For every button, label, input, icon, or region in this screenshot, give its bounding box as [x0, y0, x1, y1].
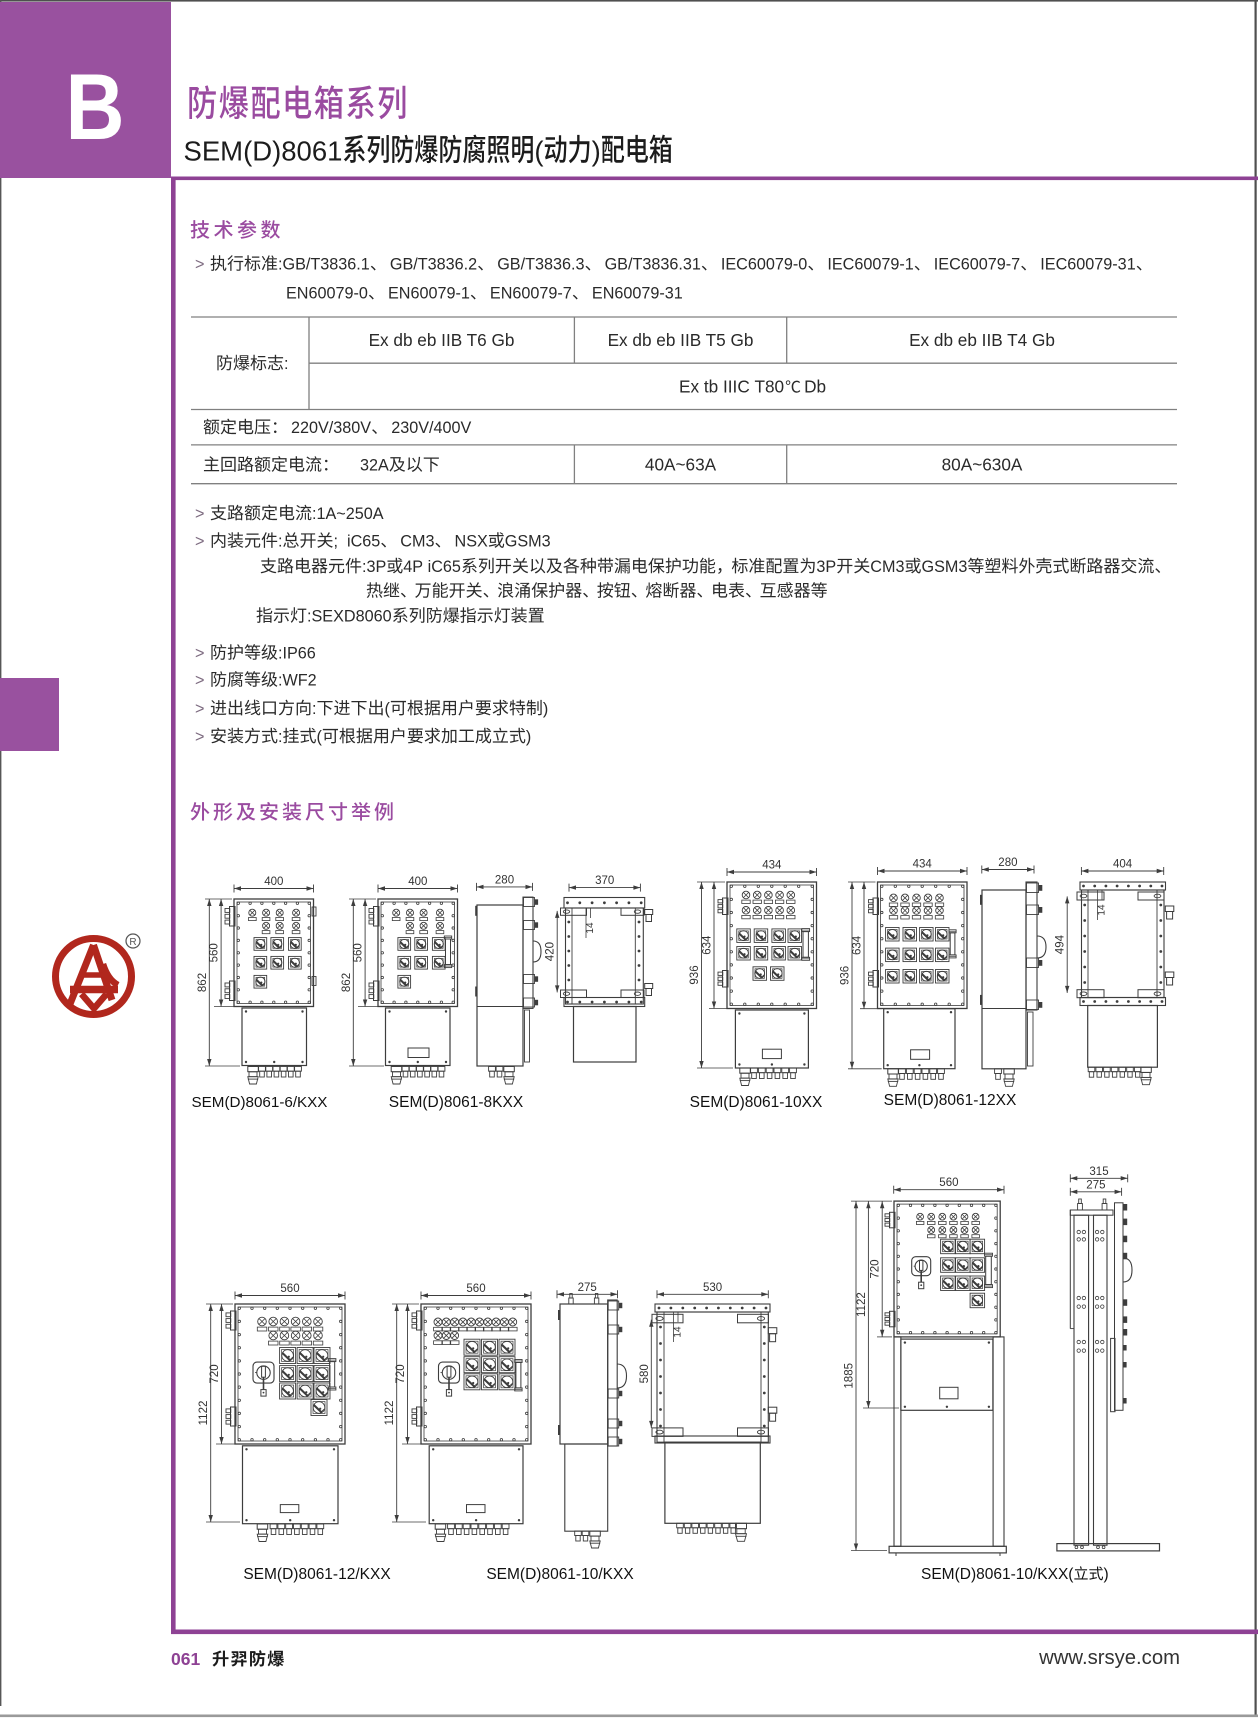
- svg-text:IIIC: IIIC: [723, 377, 750, 397]
- svg-text:80A~630A: 80A~630A: [942, 455, 1023, 475]
- svg-text:CM3: CM3: [870, 558, 904, 576]
- svg-text:560: 560: [209, 943, 221, 962]
- svg-text:720: 720: [395, 1364, 407, 1383]
- svg-text:IEC60079-31: IEC60079-31: [1040, 256, 1135, 274]
- svg-text:275: 275: [1086, 1179, 1105, 1191]
- svg-text:Ex db eb IIB T4 Gb: Ex db eb IIB T4 Gb: [909, 330, 1055, 350]
- svg-text:560: 560: [466, 1283, 485, 1295]
- svg-text::1A~250A: :1A~250A: [312, 505, 384, 523]
- svg-text:): ): [592, 136, 601, 167]
- svg-text:434: 434: [762, 860, 782, 872]
- svg-text:EN60079-0: EN60079-0: [286, 285, 368, 303]
- svg-text::: :: [278, 533, 283, 551]
- svg-text:230V/400V: 230V/400V: [391, 419, 471, 437]
- svg-text::: :: [284, 355, 289, 373]
- svg-text:634: 634: [702, 935, 714, 955]
- svg-text:634: 634: [852, 935, 864, 955]
- svg-text:;: ;: [334, 533, 339, 551]
- svg-text:CM3: CM3: [400, 533, 434, 551]
- svg-text:1122: 1122: [198, 1401, 210, 1426]
- svg-text:IEC60079-1: IEC60079-1: [827, 256, 913, 274]
- svg-text::: :: [278, 728, 283, 746]
- svg-text:SEM(D)8061-10/KXX: SEM(D)8061-10/KXX: [486, 1566, 634, 1583]
- svg-text::GB/T3836.1: :GB/T3836.1: [278, 256, 370, 274]
- svg-text:EN60079-7: EN60079-7: [490, 285, 572, 303]
- svg-text:GSM3: GSM3: [505, 533, 551, 551]
- svg-text::WF2: :WF2: [278, 672, 317, 690]
- svg-text:580: 580: [639, 1364, 651, 1383]
- svg-text:315: 315: [1089, 1166, 1108, 1178]
- svg-text:Ex: Ex: [679, 377, 699, 397]
- svg-text:560: 560: [939, 1177, 958, 1189]
- svg-text:>: >: [195, 645, 204, 663]
- svg-text:400: 400: [408, 876, 427, 888]
- svg-text:420: 420: [545, 942, 557, 961]
- svg-text:SEM(D)8061-10XX: SEM(D)8061-10XX: [690, 1094, 823, 1111]
- svg-text:www.srsye.com: www.srsye.com: [1038, 1647, 1180, 1669]
- svg-text:1122: 1122: [856, 1292, 868, 1317]
- svg-text:(: (: [534, 136, 543, 167]
- svg-text:434: 434: [913, 859, 933, 871]
- svg-text:): ): [526, 728, 531, 746]
- svg-text:404: 404: [1113, 859, 1133, 871]
- svg-text:220V/380V: 220V/380V: [291, 419, 371, 437]
- svg-text:370: 370: [595, 875, 614, 887]
- svg-text:): ): [543, 700, 548, 718]
- svg-text:1122: 1122: [384, 1401, 396, 1426]
- svg-text:061: 061: [171, 1649, 200, 1669]
- svg-text:(: (: [385, 700, 391, 718]
- svg-text:SEM(D)8061-12XX: SEM(D)8061-12XX: [884, 1092, 1017, 1109]
- svg-text:Db: Db: [804, 377, 826, 397]
- svg-text:494: 494: [1055, 934, 1067, 954]
- svg-text:862: 862: [197, 973, 209, 992]
- svg-text:SEM(D)8061-8KXX: SEM(D)8061-8KXX: [389, 1094, 524, 1111]
- svg-text::IP66: :IP66: [278, 645, 316, 663]
- svg-text:>: >: [195, 505, 204, 523]
- svg-text:14: 14: [585, 922, 596, 934]
- svg-text:720: 720: [209, 1364, 221, 1383]
- svg-text:>: >: [195, 700, 204, 718]
- svg-text:>: >: [195, 256, 204, 274]
- svg-text:400: 400: [264, 876, 283, 888]
- svg-text:14: 14: [1097, 904, 1108, 916]
- svg-text:280: 280: [998, 857, 1017, 869]
- svg-text::SEXD8060: :SEXD8060: [307, 608, 392, 626]
- svg-text::3P: :3P: [362, 558, 386, 576]
- svg-text:IEC60079-0: IEC60079-0: [721, 256, 807, 274]
- svg-text:EN60079-31: EN60079-31: [592, 285, 683, 303]
- svg-text:B: B: [65, 54, 124, 160]
- svg-text:280: 280: [495, 874, 514, 886]
- svg-text:936: 936: [840, 966, 852, 985]
- svg-text:560: 560: [280, 1283, 299, 1295]
- svg-text:>: >: [195, 728, 204, 746]
- svg-text:3P: 3P: [816, 558, 836, 576]
- svg-text:862: 862: [341, 973, 353, 992]
- svg-text:Ex db eb IIB T6 Gb: Ex db eb IIB T6 Gb: [369, 330, 515, 350]
- svg-text:32A: 32A: [360, 457, 389, 475]
- svg-text:SEM(D)8061-10/KXX(: SEM(D)8061-10/KXX(: [921, 1566, 1074, 1583]
- svg-text:4P: 4P: [403, 558, 423, 576]
- svg-text:SEM(D)8061: SEM(D)8061: [184, 136, 343, 167]
- svg-text:936: 936: [689, 965, 701, 984]
- svg-text:Ex db eb IIB T5 Gb: Ex db eb IIB T5 Gb: [608, 330, 754, 350]
- svg-text:tb: tb: [704, 377, 718, 397]
- svg-text:1885: 1885: [844, 1363, 856, 1389]
- svg-text:iC65: iC65: [428, 558, 461, 576]
- svg-text:iC65: iC65: [347, 533, 380, 551]
- svg-text:14: 14: [673, 1326, 684, 1338]
- svg-text:GSM3: GSM3: [922, 558, 968, 576]
- svg-text:IEC60079-7: IEC60079-7: [934, 256, 1020, 274]
- svg-text::: :: [312, 700, 317, 718]
- svg-text:>: >: [195, 672, 204, 690]
- svg-text:SEM(D)8061-12/KXX: SEM(D)8061-12/KXX: [243, 1566, 391, 1583]
- svg-text:R: R: [129, 937, 136, 948]
- svg-text:NSX: NSX: [455, 533, 488, 551]
- svg-text:SEM(D)8061-6/KXX: SEM(D)8061-6/KXX: [192, 1094, 328, 1111]
- svg-text:): ): [1104, 1566, 1109, 1583]
- svg-text:(: (: [317, 728, 323, 746]
- svg-text:560: 560: [353, 943, 365, 962]
- svg-text:530: 530: [703, 1282, 722, 1294]
- svg-text:>: >: [195, 533, 204, 551]
- svg-text:GB/T3836.2: GB/T3836.2: [390, 256, 477, 274]
- svg-text:EN60079-1: EN60079-1: [388, 285, 470, 303]
- svg-text:T80: T80: [755, 377, 785, 397]
- svg-text:GB/T3836.3: GB/T3836.3: [497, 256, 584, 274]
- svg-text:GB/T3836.31: GB/T3836.31: [605, 256, 701, 274]
- svg-text:275: 275: [578, 1282, 597, 1294]
- svg-text:40A~63A: 40A~63A: [645, 455, 717, 475]
- svg-text:720: 720: [870, 1259, 882, 1278]
